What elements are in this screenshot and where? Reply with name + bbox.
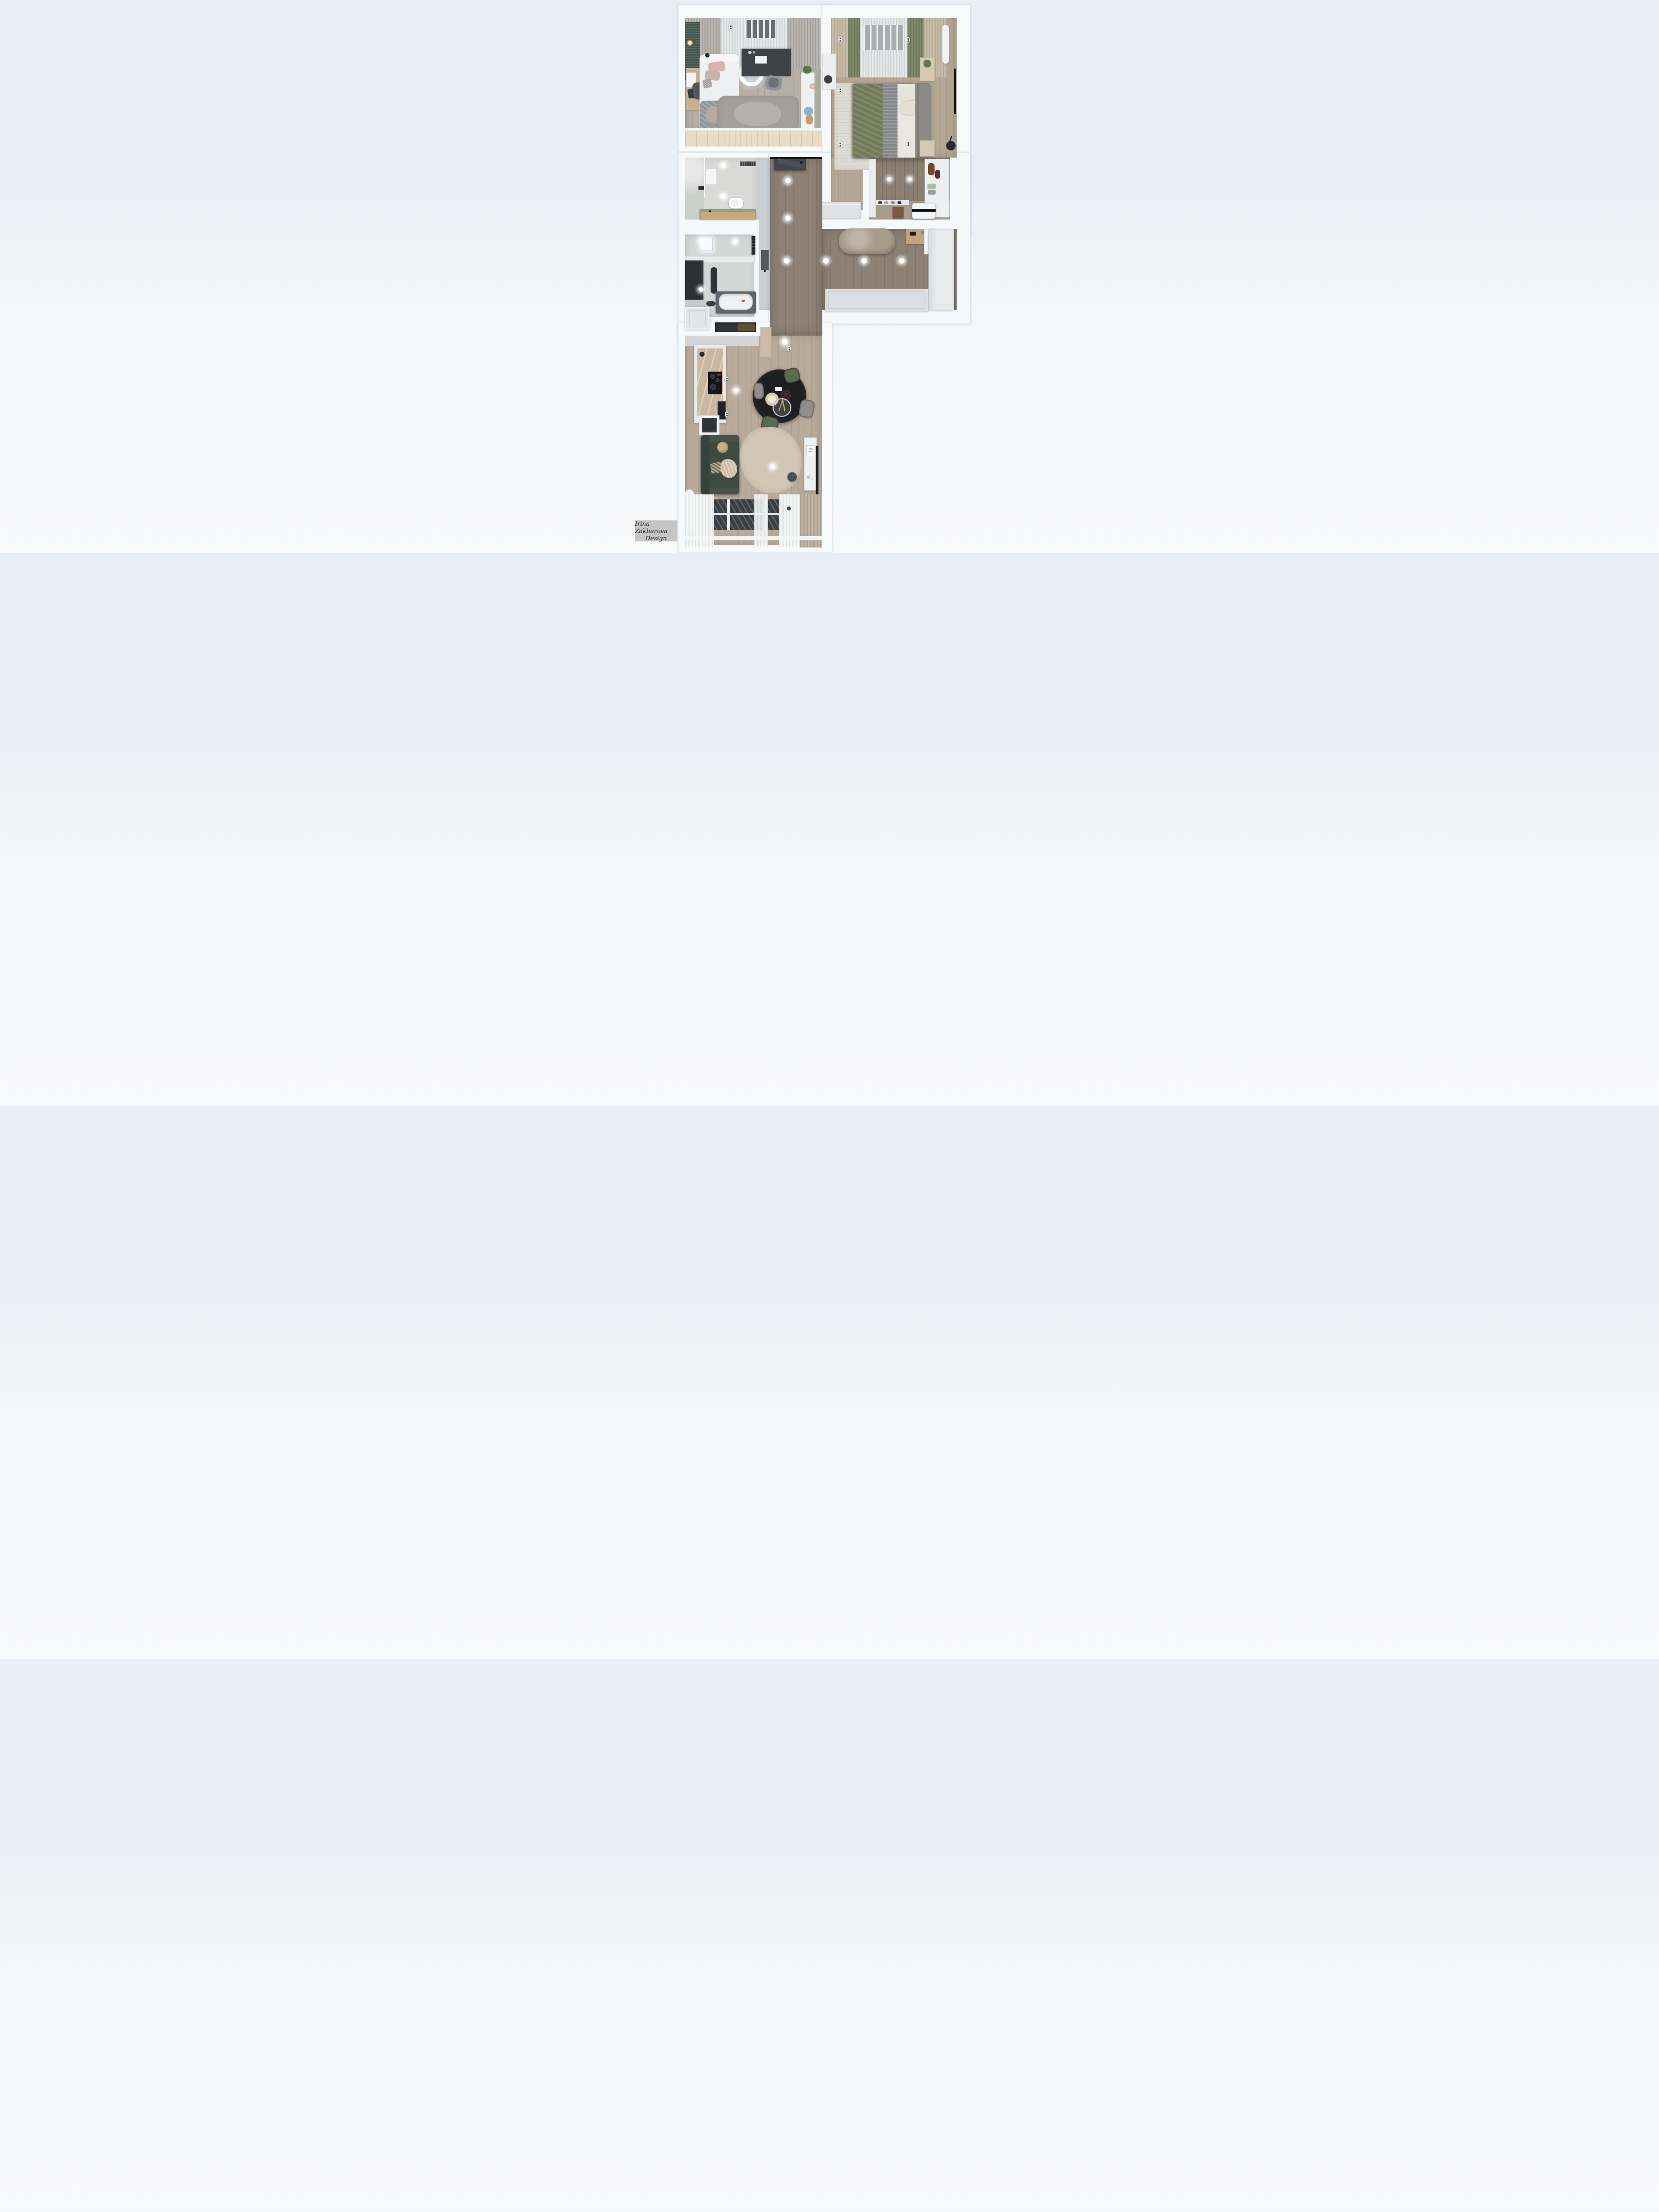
sideboard-poster: THE ART — [806, 445, 815, 456]
kids-pillow-pattern — [702, 79, 713, 89]
living-glow-1 — [781, 338, 789, 346]
kids-open-book — [755, 56, 767, 64]
bedroom-dresser-lip — [820, 204, 861, 205]
shower-fixtures — [698, 186, 704, 190]
bath-main-light-3 — [698, 286, 704, 293]
window-rail — [711, 513, 784, 515]
washing-machine-frame — [689, 310, 706, 326]
closet-shoe-3 — [891, 201, 895, 204]
hall-light-2 — [784, 215, 791, 222]
sideboard-vase-2 — [811, 478, 813, 481]
shower-glass-line — [704, 158, 705, 198]
bedroom-window — [863, 25, 904, 50]
bath-tall-cabinet-dark — [685, 260, 703, 300]
vanity-tap — [709, 210, 711, 212]
kids-spot-pair — [729, 24, 732, 30]
dining-cutlery — [775, 387, 782, 391]
hall-wall-hook — [764, 270, 766, 272]
coffee-side-table — [787, 472, 797, 482]
closet-pendant-1 — [886, 176, 892, 182]
bath-towel-radiator — [711, 267, 717, 294]
closet-bag-silver — [928, 190, 936, 195]
hall-wardrobe-panel — [828, 291, 925, 309]
closet-shoe-1 — [878, 201, 882, 204]
living-window-sill — [685, 536, 822, 540]
bedroom-desk-chair — [824, 75, 832, 84]
dining-berries — [784, 393, 788, 397]
bedroom-spot-2 — [906, 37, 910, 43]
kids-toy-clock — [810, 84, 815, 89]
bedroom-floor-lamp — [946, 141, 956, 150]
bathroom-ac-grille — [740, 161, 756, 166]
closet-bag-maroon — [935, 170, 940, 179]
hall-west-wall — [759, 158, 770, 310]
sofa-cushion-tan — [717, 442, 728, 453]
closet-shoe-4 — [898, 201, 901, 204]
hob-burner-3 — [710, 384, 716, 390]
closet-left-shelf — [869, 159, 876, 217]
bedroom-spot-4 — [838, 142, 842, 147]
curtain-knob — [787, 507, 791, 510]
entry-door-handle — [800, 161, 802, 164]
kitchen-spot-2 — [725, 377, 728, 382]
designer-credit-name: Irina Zakharova — [635, 520, 677, 535]
hall-light-3 — [783, 257, 790, 264]
kids-wall-clock — [687, 40, 693, 46]
toilet-seat — [731, 200, 739, 207]
closet-bag-brown — [928, 163, 935, 175]
bedroom-spot-5 — [906, 141, 910, 147]
hall-wall-console — [761, 250, 769, 270]
sofa-armrest-bottom — [709, 488, 739, 494]
shower-tray — [706, 169, 717, 185]
kids-task-chair-seat — [768, 77, 779, 88]
kids-rug-inner — [734, 102, 781, 126]
hall-light-6 — [898, 257, 905, 264]
chair-gray-left — [753, 382, 764, 399]
closet-shoe-2 — [884, 201, 888, 204]
closet-basket-green — [927, 184, 936, 189]
sofa-back-band — [701, 435, 709, 494]
living-glow-3 — [769, 463, 776, 470]
hall-light-4 — [822, 257, 830, 264]
bedroom-pillow2 — [900, 101, 915, 115]
kids-toy-elephant — [804, 107, 813, 116]
hall-light-5 — [860, 257, 868, 264]
bathroom-light-2 — [720, 193, 727, 200]
kids-desk-cup2 — [753, 51, 755, 54]
kids-balcony-wood — [685, 131, 822, 147]
vanity-wood-front — [701, 212, 755, 219]
towel-rail-black — [752, 236, 755, 255]
kitchen-spot-1 — [787, 346, 791, 351]
bedroom-desk — [822, 54, 836, 90]
bedroom-tv — [954, 69, 956, 114]
bedroom-pillow — [900, 87, 915, 101]
kids-desk-cup — [748, 51, 752, 54]
living-glow-2 — [733, 387, 739, 394]
kids-curtain-right — [787, 18, 821, 69]
bathroom-light-1 — [720, 162, 727, 169]
bedroom-curtain-green-left — [848, 18, 860, 77]
designer-credit-box: Irina Zakharova Design — [635, 520, 677, 541]
hall-tall-cabinet — [928, 229, 954, 310]
bath-main-light-1 — [698, 238, 704, 244]
hall-light-1 — [784, 177, 791, 184]
kitchen-kettle — [700, 352, 705, 357]
sofa-throw-beige — [721, 459, 737, 478]
bathtub-faucet — [742, 300, 745, 302]
hob-burner-2 — [716, 378, 719, 382]
bath-sink-1 — [706, 301, 716, 306]
kids-toy-giraffe — [806, 115, 813, 124]
hall-console-phone — [910, 232, 916, 236]
kids-wall-sconce — [705, 53, 709, 58]
closet-suitcase-band — [912, 209, 936, 212]
bedroom-ac-unit — [942, 25, 949, 64]
hob-burner-1 — [710, 374, 715, 379]
sofa-armrest-top — [709, 435, 739, 442]
closet-box-brown — [893, 207, 904, 218]
kitchen-spot-3 — [725, 411, 728, 417]
bedroom-duvet-green — [853, 84, 887, 158]
wall-niche-gold — [738, 324, 755, 331]
living-display-glass — [702, 418, 717, 432]
closet-pendant-2 — [907, 176, 912, 182]
hall-mirror-strip — [924, 229, 928, 254]
kitchen-doorway-band — [760, 327, 771, 357]
sideboard-vase-1 — [807, 476, 810, 479]
hob-controls-red — [717, 374, 721, 375]
bedroom-spot-1 — [838, 36, 842, 42]
bath-main-light-2 — [732, 238, 738, 244]
bedroom-spot-3 — [838, 87, 842, 93]
bedroom-nightstand-plant — [924, 60, 931, 67]
hall-pouf-boucle — [839, 228, 895, 254]
kids-plant — [803, 66, 812, 74]
floor-plan-render: THE ART Irina Zakharova Design — [622, 0, 1037, 553]
kids-window — [745, 20, 776, 38]
bathtub — [719, 294, 753, 310]
designer-credit-word: Design — [645, 535, 667, 542]
hall-corridor-floor — [770, 158, 822, 336]
bedroom-nightstand-bottom — [920, 140, 935, 156]
